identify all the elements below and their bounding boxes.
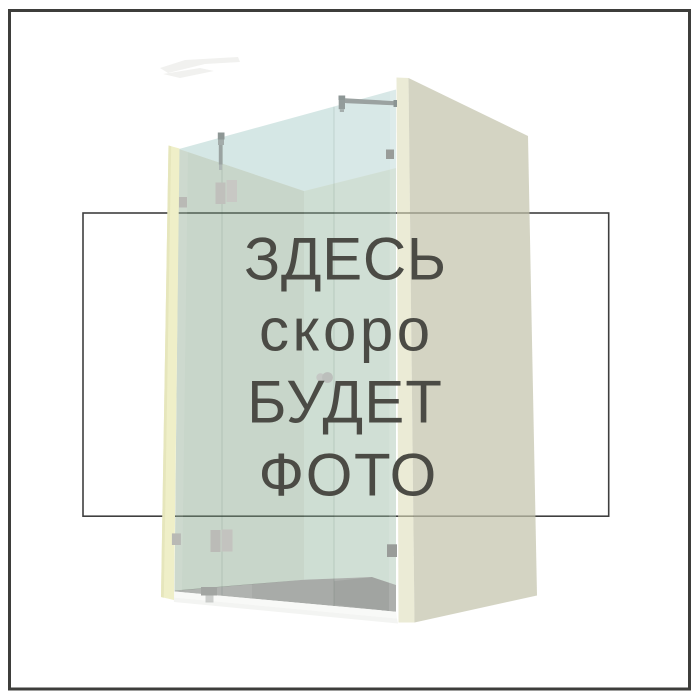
svg-text:ЗДЕСЬ: ЗДЕСЬ <box>244 226 447 293</box>
svg-text:скоро: скоро <box>259 297 434 364</box>
svg-text:БУДЕТ: БУДЕТ <box>247 368 443 435</box>
svg-text:ФОТО: ФОТО <box>259 441 438 508</box>
